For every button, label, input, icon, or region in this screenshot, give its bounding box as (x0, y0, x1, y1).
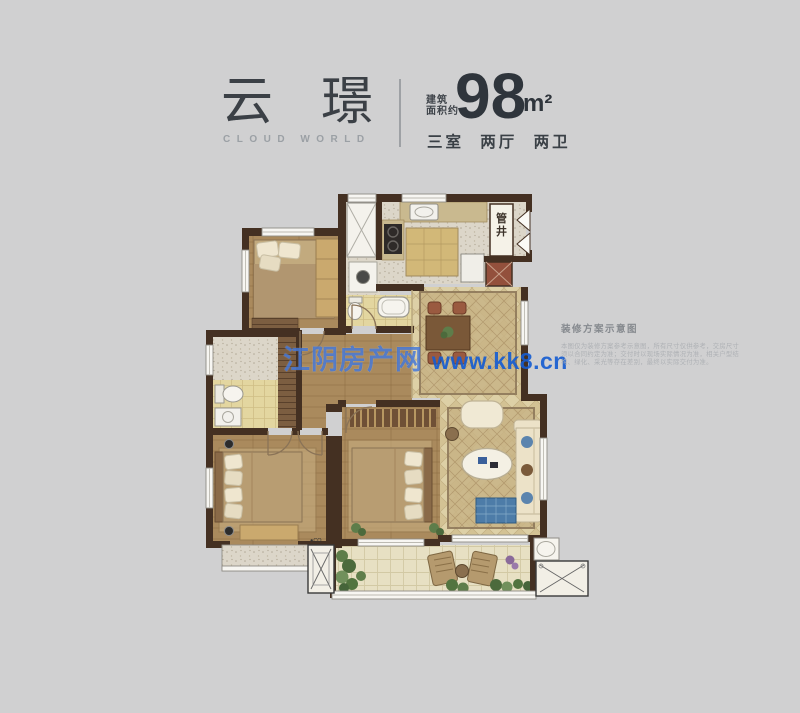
bathroom2-floor-upper (213, 337, 278, 380)
window (242, 250, 249, 292)
bathroom2-basin (215, 408, 241, 426)
window (402, 194, 446, 202)
coffee-table (462, 449, 512, 480)
bathroom2-toilet (215, 385, 243, 403)
kitchen-island (406, 228, 458, 276)
kitchen-sink (410, 204, 438, 220)
window (521, 301, 528, 345)
ac-platform-label: ●CO (310, 538, 322, 544)
window (206, 468, 213, 508)
bathtub (378, 297, 409, 317)
ac-platform-left (308, 545, 334, 593)
master-wardrobe (316, 239, 339, 317)
window (206, 345, 213, 375)
bedroom2-bench (240, 525, 298, 540)
side-table (446, 428, 459, 441)
armchair (461, 401, 503, 428)
bathroom1-vanity (349, 262, 377, 292)
ac-platform-right (536, 561, 588, 596)
flue-shaft (486, 262, 512, 286)
window (358, 539, 424, 546)
bedroom2-bed (215, 452, 302, 522)
window (262, 228, 314, 236)
decoration-note-line: 构、绿化、采光等存在差别，最终以实际交付为准。 (561, 359, 729, 367)
window (540, 438, 547, 500)
outdoor-basin (534, 538, 559, 560)
bedroom3-bed (352, 448, 432, 522)
bathroom1-toilet (348, 297, 362, 320)
wall-lamp (225, 527, 234, 536)
window (348, 194, 376, 202)
balcony-glass (332, 591, 536, 599)
bay-window (222, 545, 322, 571)
refrigerator (461, 254, 484, 282)
poster-background: 云璟 CLOUD WORLD 建筑 面积约 98 m² 三室 两厅 两卫 (0, 0, 800, 713)
closet-floor (278, 337, 296, 428)
sofa (514, 420, 542, 522)
sliding-door (452, 535, 528, 542)
stove (384, 224, 402, 254)
decoration-note-line: 须以合同约定为准；交付时以现场实际情况为准，相关户型结 (561, 351, 729, 359)
wall-lamp (225, 440, 234, 449)
decoration-note: 装修方案示意图 本图仅为装修方案参考示意图，所有尺寸仅供参考，交房尺寸 须以合同… (561, 321, 729, 366)
pipe-shaft-label: 管井 (496, 211, 507, 238)
shower-stall (347, 203, 376, 257)
decoration-note-line: 本图仅为装修方案参考示意图，所有尺寸仅供参考，交房尺寸 (561, 343, 729, 351)
decoration-note-title: 装修方案示意图 (561, 321, 729, 335)
